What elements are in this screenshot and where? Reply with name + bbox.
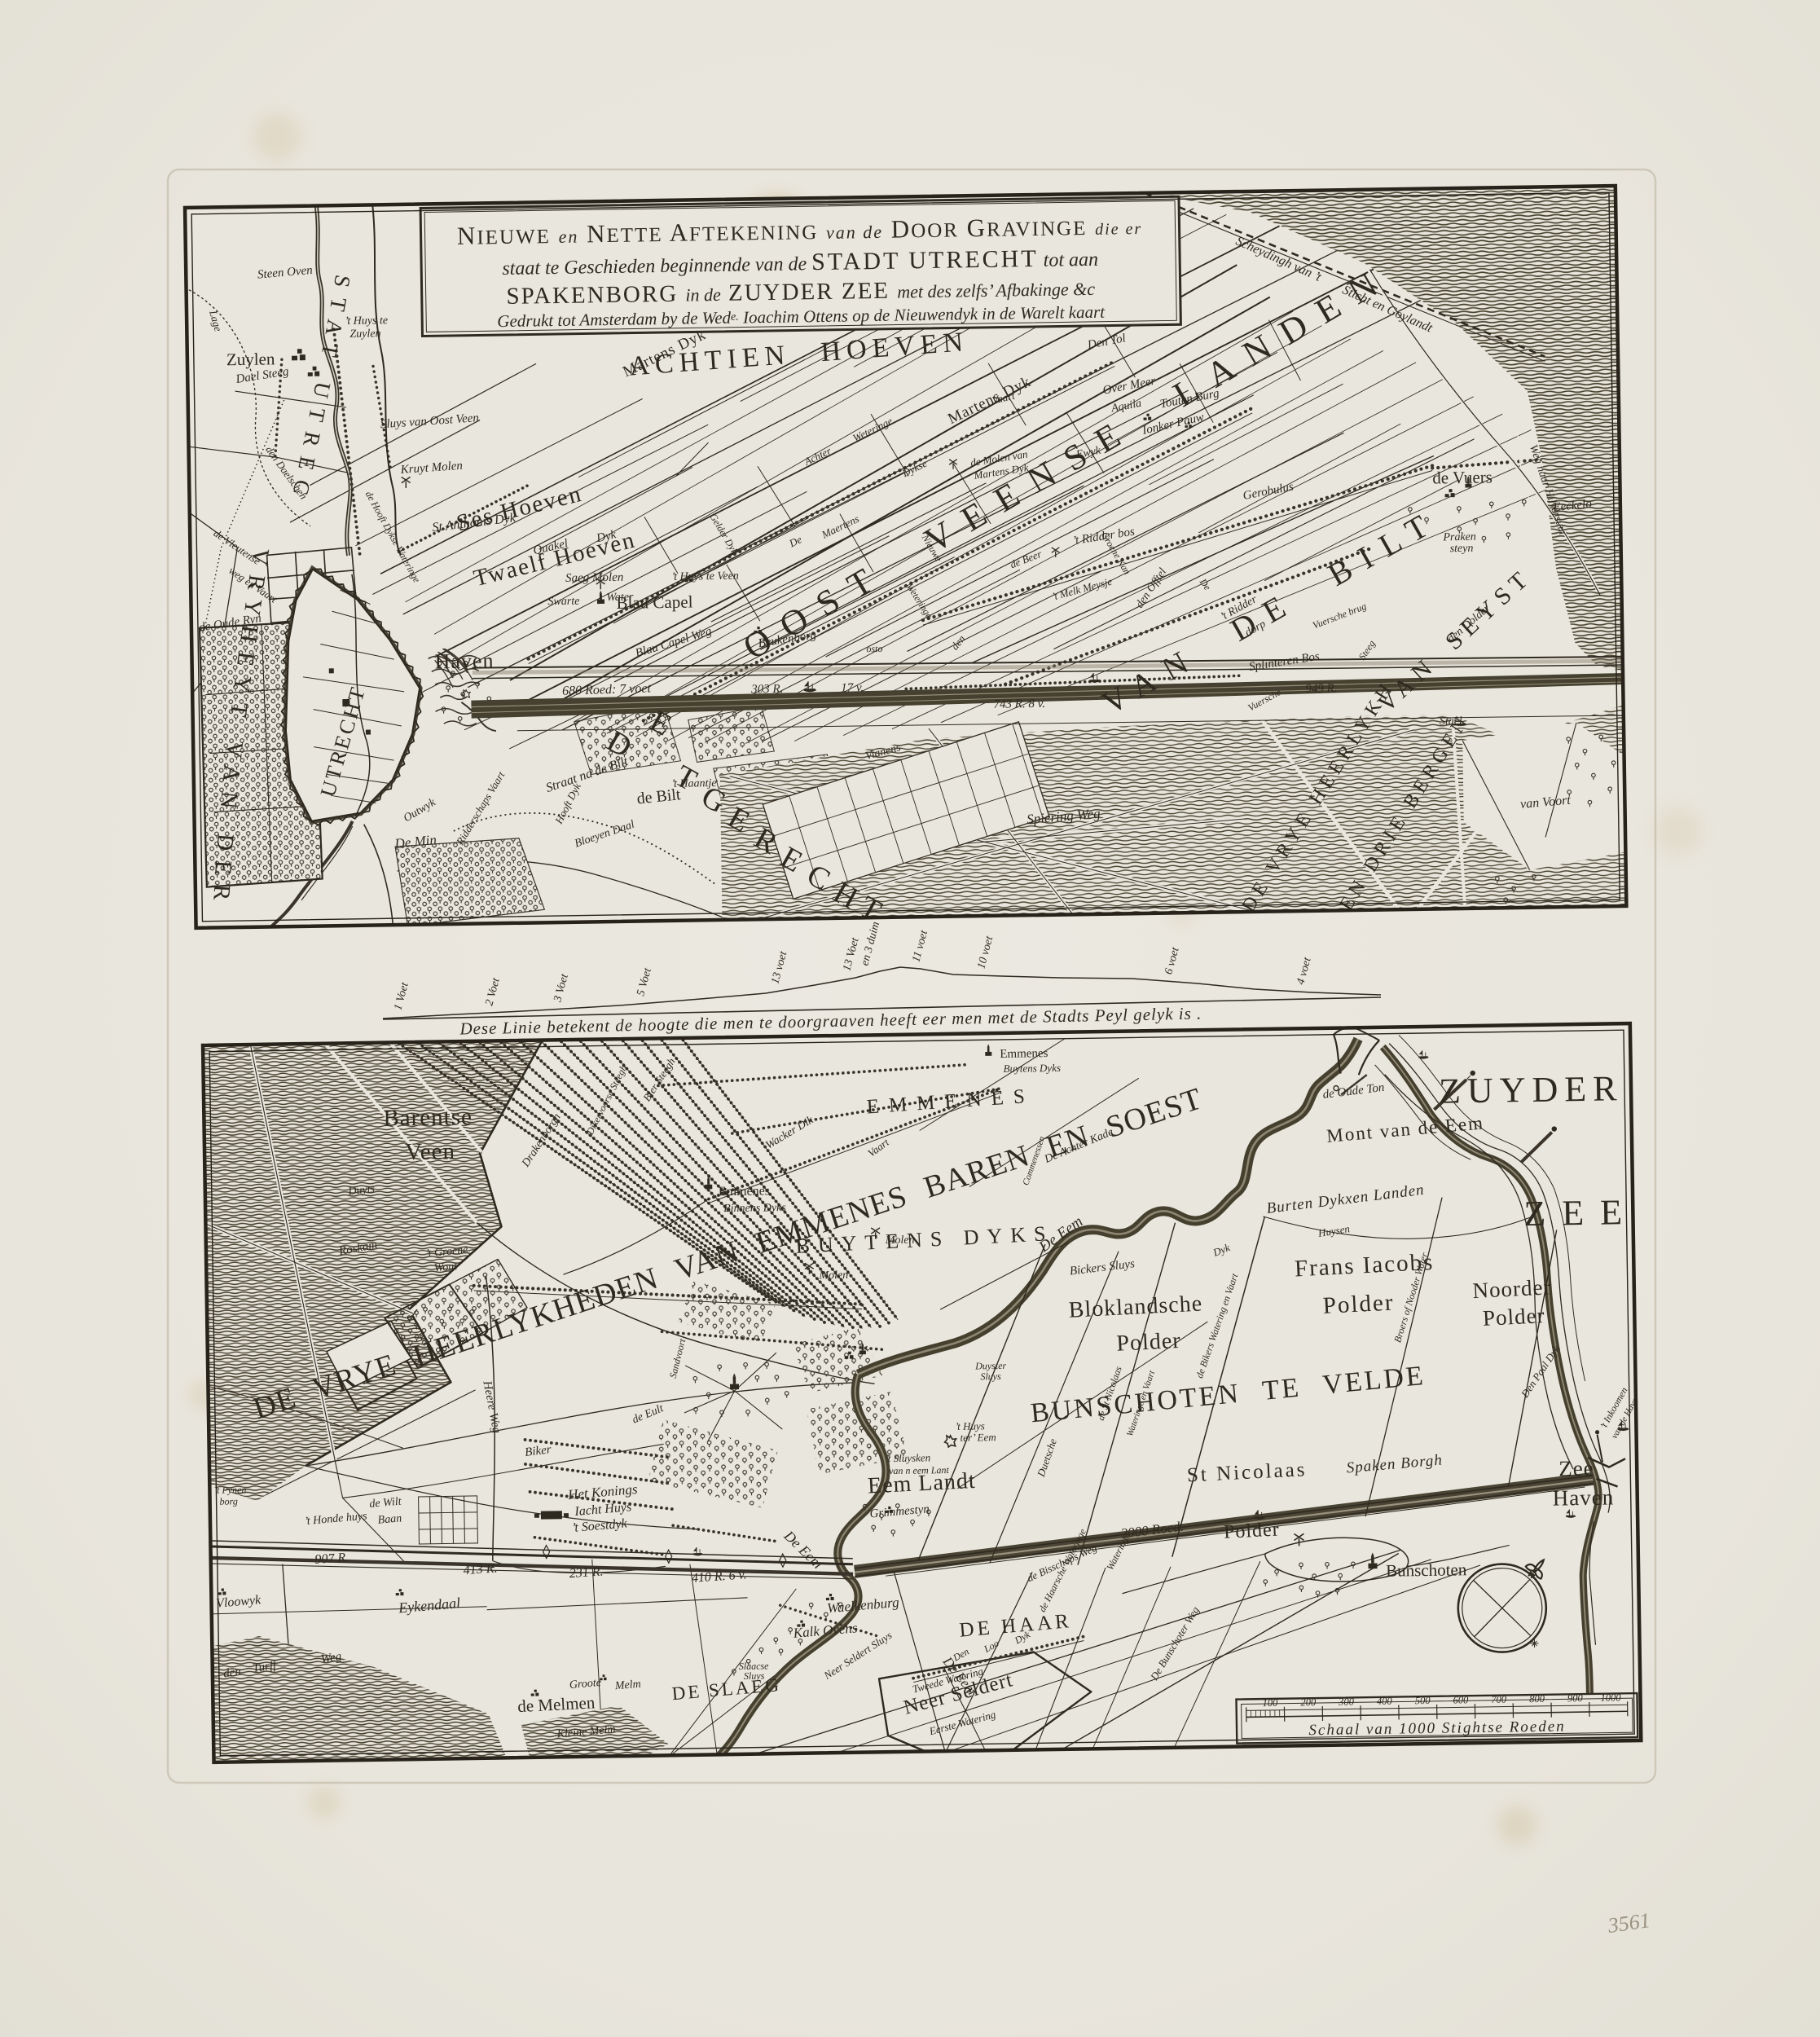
svg-text:Emmenes: Emmenes [1000,1047,1048,1061]
svg-text:900: 900 [1567,1692,1584,1704]
svg-text:Baan: Baan [377,1512,402,1526]
svg-text:steyn: steyn [1450,543,1474,555]
svg-text:’t Huys te Veen: ’t Huys te Veen [671,570,739,583]
svg-text:Noorder: Noorder [1472,1274,1552,1303]
svg-text:Melm: Melm [613,1678,641,1693]
svg-text:Zee: Zee [1558,1456,1594,1481]
svg-text:Sluys: Sluys [744,1670,765,1681]
svg-text:Saeg Molen: Saeg Molen [565,571,623,585]
svg-text:Buytens Dyks: Buytens Dyks [1003,1062,1061,1075]
svg-text:de Melmen: de Melmen [517,1692,596,1716]
svg-text:Blau Capel: Blau Capel [616,592,692,612]
svg-text:743 R. 8 v.: 743 R. 8 v. [993,697,1045,711]
svg-text:Zuylen: Zuylen [349,328,380,341]
svg-text:borg: borg [220,1495,238,1507]
svg-text:680 Roed: 7 voet: 680 Roed: 7 voet [562,681,652,698]
svg-text:907 R.: 907 R. [314,1551,349,1567]
svg-text:Polder: Polder [1223,1519,1280,1542]
svg-text:’t Huys te: ’t Huys te [345,315,388,328]
svg-text:Haven: Haven [1553,1485,1615,1510]
svg-text:Polder: Polder [1116,1328,1182,1357]
svg-text:van n eem Lant: van n eem Lant [889,1464,950,1476]
svg-text:100: 100 [1263,1697,1279,1709]
svg-text:500: 500 [1415,1695,1431,1706]
svg-text:ter’ Eem: ter’ Eem [960,1431,996,1444]
svg-text:300: 300 [1338,1696,1355,1707]
svg-text:400: 400 [1377,1696,1393,1707]
svg-text:Veen: Veen [405,1138,455,1165]
svg-text:413 R.: 413 R. [463,1561,498,1577]
svg-text:Molen: Molen [885,1234,915,1247]
svg-text:303 R.: 303 R. [750,683,783,697]
svg-text:’t Pynen: ’t Pynen [214,1484,246,1496]
svg-text:Swarte: Swarte [547,596,579,609]
svg-text:’t Sluysken: ’t Sluysken [886,1451,930,1464]
svg-text:1000: 1000 [1600,1692,1621,1703]
svg-text:de Vuers: de Vuers [1432,467,1492,487]
svg-text:Emmenes: Emmenes [719,1184,770,1199]
svg-text:osto: osto [866,643,882,654]
svg-text:700: 700 [1491,1694,1507,1705]
svg-text:949 R.: 949 R. [1305,682,1337,696]
svg-text:231 R.: 231 R. [569,1564,604,1581]
svg-text:800: 800 [1529,1693,1545,1705]
svg-text:ZEE: ZEE [1523,1192,1638,1234]
svg-text:Polder: Polder [1322,1290,1395,1319]
svg-text:600: 600 [1453,1694,1469,1705]
svg-text:Bunschoten: Bunschoten [1386,1560,1467,1581]
svg-text:Molen: Molen [818,1269,848,1282]
svg-text:17 v.: 17 v. [841,681,864,694]
svg-text:Stael: Stael [1440,715,1462,728]
svg-text:200: 200 [1300,1696,1317,1708]
svg-text:den: den [222,1665,242,1680]
svg-text:Zuylen: Zuylen [226,349,275,369]
svg-text:Polder: Polder [1482,1303,1545,1331]
svg-text:Barentse: Barentse [383,1104,473,1132]
svg-text:Sluys: Sluys [980,1370,1001,1382]
svg-text:Binnens Dyks: Binnens Dyks [723,1202,786,1215]
svg-text:Haven: Haven [434,649,494,673]
svg-text:ZUYDER: ZUYDER [1439,1068,1624,1111]
svg-text:Wout: Wout [433,1260,459,1275]
